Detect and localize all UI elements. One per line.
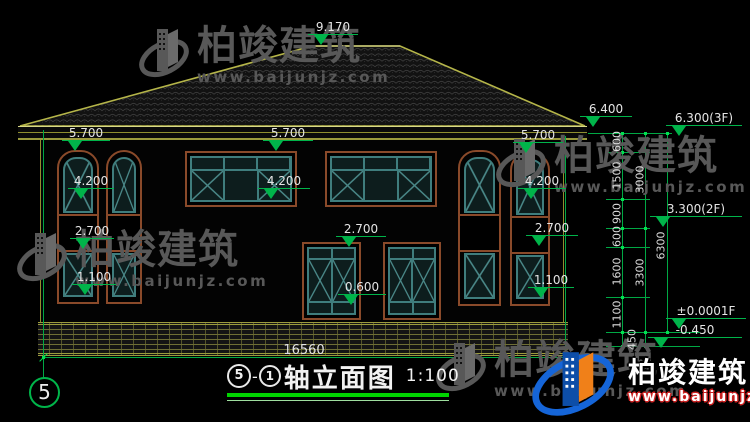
elevation-value: 2.700 (526, 222, 578, 235)
brand-logo-badge: 柏竣建筑 www.baijunjz.com (528, 344, 750, 418)
elevation-triangle-icon (68, 141, 82, 151)
drawing-title: 5 - 1 轴立面图 1:100 (227, 360, 460, 392)
elevation-marker: 2.700 (70, 225, 114, 249)
window-pane (399, 171, 430, 200)
dimension-tick (644, 331, 647, 334)
window-frame (388, 247, 436, 315)
brand-name: 柏竣建筑 (628, 357, 750, 389)
axis-bubble-end: 1 (259, 365, 281, 387)
window-ground (383, 242, 441, 320)
window-wide (325, 151, 437, 207)
drawing-scale: 1:100 (406, 366, 460, 386)
window-frame (330, 156, 432, 202)
watermark-logo-icon (138, 24, 192, 86)
brand-url: www.baijunjz.com (628, 389, 750, 405)
elevation-marker: 2.700 (526, 222, 578, 246)
watermark: 柏竣建筑www.baijunjz.com (16, 228, 268, 290)
chain-dimension-label: 6300 (655, 224, 668, 268)
chain-dimension-label: 3000 (634, 158, 647, 202)
window-pane (332, 171, 365, 200)
elevation-value: -0.450 (648, 324, 742, 337)
elevation-value: 3.300(2F) (650, 203, 742, 216)
elevation-marker: 5.700 (62, 127, 110, 151)
window-pane (390, 260, 413, 301)
elevation-triangle-icon (264, 189, 278, 199)
elevation-value: 4.200 (68, 175, 114, 188)
chain-dimension-label: 1600 (611, 250, 624, 294)
window-rail (309, 249, 354, 260)
dimension-tick (644, 227, 647, 230)
elevation-triangle-icon (672, 126, 686, 136)
title-underline-thin (227, 400, 449, 401)
elevation-value: 5.700 (263, 127, 313, 140)
watermark-url: www.baijunjz.com (554, 178, 747, 196)
elevation-marker: 1.100 (528, 274, 574, 298)
elevation-triangle-icon (78, 285, 92, 295)
elevation-value: 5.700 (62, 127, 110, 140)
elevation-value: 2.700 (70, 225, 114, 238)
window-spandrel (460, 214, 499, 252)
elevation-value: 2.700 (336, 223, 386, 236)
elevation-marker: 5.700 (263, 127, 313, 151)
axis-bubble-start: 5 (227, 364, 251, 388)
elevation-triangle-icon (532, 236, 546, 246)
elevation-triangle-icon (519, 143, 533, 153)
elevation-marker: 4.200 (68, 175, 114, 199)
elevation-marker: 4.200 (518, 175, 566, 199)
elevation-value: 6.400 (580, 103, 632, 116)
elevation-triangle-icon (586, 117, 600, 127)
window-pane (192, 171, 225, 200)
elevation-triangle-icon (314, 35, 328, 45)
title-underline (227, 393, 449, 397)
elevation-marker: 4.200 (258, 175, 310, 199)
elevation-value: 4.200 (258, 175, 310, 188)
brand-logo-icon (528, 344, 624, 418)
axis-separator: - (252, 367, 258, 386)
window-pane (225, 171, 258, 200)
watermark-brand: 柏竣建筑 (197, 24, 390, 68)
window-pane (365, 171, 398, 200)
elevation-triangle-icon (74, 189, 88, 199)
elevation-marker: 9.170 (308, 21, 358, 45)
elevation-marker: 2.700 (336, 223, 386, 247)
drawing-canvas: 5 16560 5 - 1 轴立面图 1:100 柏竣建筑 www.baijun… (0, 0, 750, 422)
overall-dimension-label: 16560 (254, 343, 354, 358)
window-transom (192, 158, 290, 171)
window-pane (464, 253, 495, 299)
elevation-value: 6.300(3F) (666, 112, 742, 125)
chain-dimension-label: 3300 (634, 251, 647, 295)
drawing-name: 轴立面图 (284, 358, 396, 395)
elevation-value: 4.200 (518, 175, 566, 188)
elevation-value: 1.100 (72, 271, 116, 284)
elevation-marker: 6.400 (580, 103, 632, 127)
watermark-logo-icon (16, 228, 70, 290)
elevation-value: 0.600 (338, 281, 386, 294)
elevation-marker: 1.100 (72, 271, 116, 295)
elevation-value: 9.170 (308, 21, 358, 34)
elevation-triangle-icon (524, 189, 538, 199)
window-pane (309, 260, 333, 301)
window-pane (112, 157, 136, 213)
window-pane (464, 157, 495, 213)
window-rail (390, 249, 434, 260)
grid-bubble: 5 (29, 377, 60, 408)
elevation-marker: 6.300(3F) (666, 112, 742, 136)
elevation-marker: 5.700 (513, 129, 563, 153)
elevation-value: 1.100 (528, 274, 574, 287)
elevation-triangle-icon (76, 239, 90, 249)
watermark-brand: 柏竣建筑 (554, 134, 747, 178)
watermark-url: www.baijunjz.com (197, 68, 390, 86)
elevation-triangle-icon (344, 295, 358, 305)
elevation-marker: 0.600 (338, 281, 386, 305)
elevation-triangle-icon (342, 237, 356, 247)
window-pane (413, 260, 434, 301)
chain-dimension-label: 1100 (611, 293, 624, 337)
elevation-value: 5.700 (513, 129, 563, 142)
elevation-triangle-icon (534, 288, 548, 298)
window-transom (332, 158, 430, 171)
window-rail (390, 301, 434, 313)
elevation-triangle-icon (269, 141, 283, 151)
elevation-value: ±0.0001F (666, 305, 746, 318)
